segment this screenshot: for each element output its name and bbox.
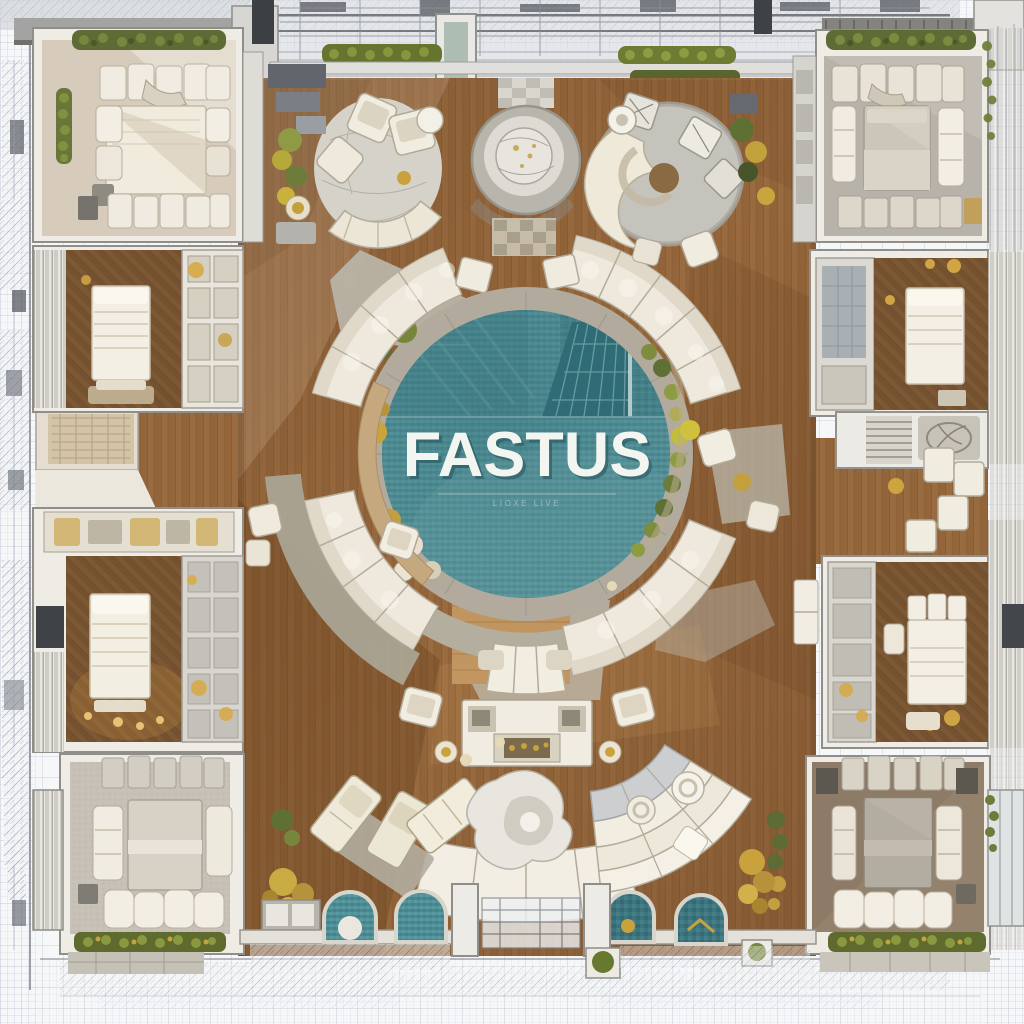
- svg-text:LIOXE LIVE: LIOXE LIVE: [493, 499, 561, 508]
- svg-text:FASTUS: FASTUS: [403, 420, 652, 490]
